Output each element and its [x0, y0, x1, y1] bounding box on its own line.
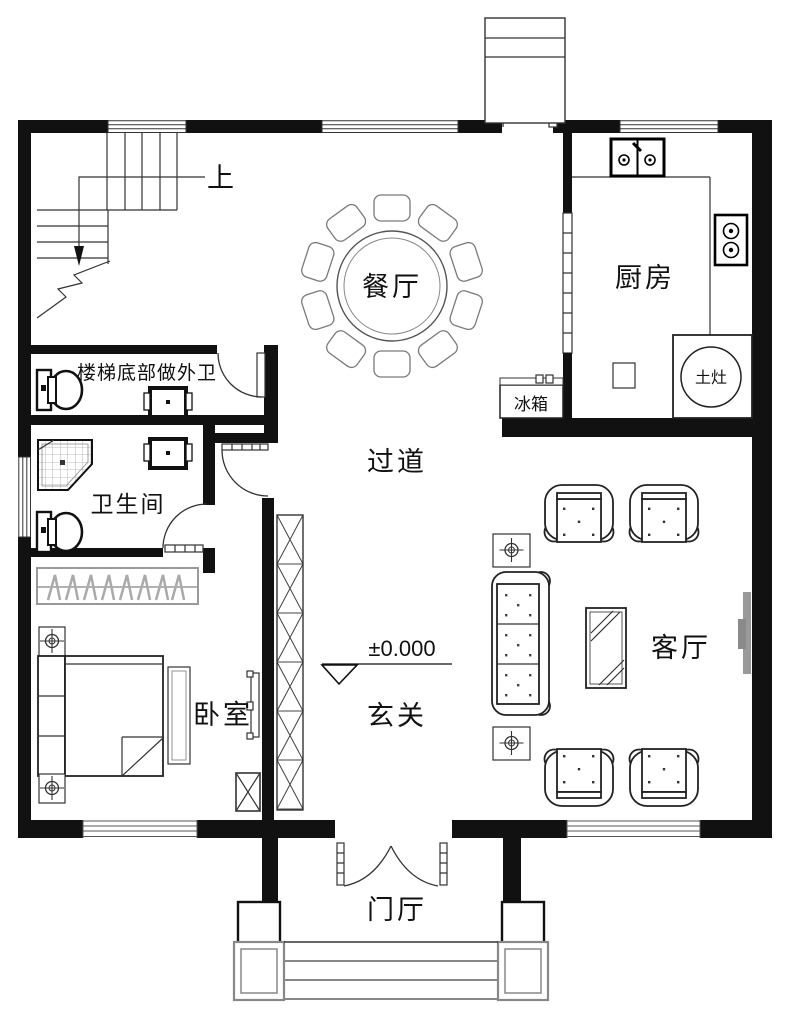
corner-shower [38, 440, 92, 490]
bath-top-wall [31, 345, 217, 354]
kitchen-west-wall-lower [563, 353, 572, 420]
side-table [493, 727, 530, 760]
dining-room: 餐厅 [300, 195, 484, 377]
bed [38, 656, 163, 776]
room-label-bedroom: 卧室 [193, 700, 253, 730]
fridge-label: 冰箱 [514, 395, 548, 414]
doors [163, 77, 557, 886]
infill-partition-xhatch [277, 515, 303, 810]
room-label-foyer: 玄关 [367, 701, 427, 731]
earthen-stove-label: 土灶 [695, 369, 727, 387]
kitchen-sink [611, 139, 664, 176]
stairs-up-label: 上 [207, 163, 237, 193]
wardrobe [37, 568, 198, 604]
kitchen: 土灶 冰箱 厨房 [500, 139, 752, 418]
porch: 门厅 [234, 895, 548, 1000]
armchair [545, 485, 614, 542]
toilet-icon [37, 512, 82, 552]
nightstand [39, 627, 65, 656]
window-bottom-living [567, 820, 700, 838]
washbasin-icon [144, 439, 192, 468]
porch-column [502, 902, 544, 943]
tv-unit [738, 592, 751, 674]
window-top-left [108, 120, 186, 133]
fridge: 冰箱 [500, 375, 563, 418]
kitchen-south-wall [502, 418, 752, 437]
stair-break-line [37, 261, 110, 318]
room-label-corridor: 过道 [367, 447, 427, 477]
room-label-dining: 餐厅 [362, 272, 422, 302]
level-marker: ±0.000 [322, 636, 452, 684]
toilet-icon [37, 370, 82, 410]
room-label-kitchen: 厨房 [615, 263, 675, 293]
floor-plan-image: 上 餐厅 [0, 0, 789, 1015]
window-left [18, 457, 31, 537]
living-room: 客厅 [492, 485, 751, 806]
bath-south-stub [203, 548, 215, 573]
porch-steps [284, 942, 498, 999]
porch-left-wall [262, 838, 278, 902]
understairs-bath-door [218, 353, 265, 397]
bathrooms: 楼梯底部做外卫 卫生间 [37, 362, 217, 552]
foyer-west-wall [262, 498, 274, 820]
nightstand [39, 774, 65, 803]
window-top-kitchen [620, 120, 718, 133]
entry-double-door [337, 843, 447, 886]
armchair [630, 485, 699, 542]
sofa [492, 572, 550, 715]
stairs: 上 [37, 133, 237, 318]
column-xhatch [236, 773, 260, 811]
earthen-stove: 土灶 [673, 335, 752, 418]
room-label-porch: 门厅 [367, 895, 427, 925]
armchair [545, 749, 614, 806]
room-label-living: 客厅 [651, 633, 711, 663]
window-bottom-bedroom [83, 820, 197, 838]
kitchen-west-wall-upper [563, 133, 572, 213]
under-stairs-note: 楼梯底部做外卫 [77, 362, 217, 384]
corridor-foyer: 过道 ±0.000 玄关 [322, 447, 452, 731]
kitchen-counter [572, 177, 710, 335]
stairs-up-arrow [74, 177, 205, 266]
porch-right-wall [503, 838, 521, 902]
porch-column-base [234, 942, 284, 1000]
bedside-bench [168, 667, 190, 764]
back-entry-steps [485, 18, 565, 123]
bedroom: 卧室 [37, 568, 253, 803]
armchair [630, 749, 699, 806]
porch-column [238, 902, 280, 943]
corridor-west-connector-wall [264, 345, 278, 443]
room-label-bathroom: 卫生间 [91, 491, 166, 517]
coffee-table [586, 608, 626, 688]
kitchen-stool [613, 363, 635, 388]
window-top-middle [322, 120, 458, 133]
corridor-top-wall [215, 433, 264, 443]
level-value: ±0.000 [368, 636, 435, 661]
bathroom-door [163, 504, 207, 552]
side-table [493, 534, 530, 567]
bath-east-wall [203, 425, 215, 505]
floor-plan-svg: 上 餐厅 [0, 0, 789, 1015]
gas-stove [715, 215, 747, 265]
porch-column-base [498, 942, 548, 1000]
kitchen-west-wall-slider [563, 213, 572, 353]
corridor-door [222, 444, 268, 496]
washbasin-icon [144, 388, 192, 417]
